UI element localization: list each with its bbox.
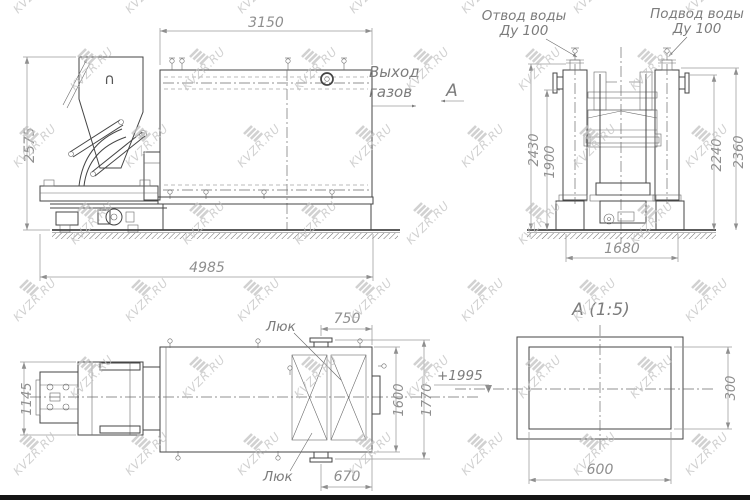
watermark-text: KVZR.RU [515,198,564,247]
dim-2360: 2360 [732,135,747,168]
watermark-text: KVZR.RU [234,275,283,324]
watermark-text: KVZR.RU [458,275,507,324]
dim-4985: 4985 [189,260,225,276]
watermark-text: KVZR.RU [179,44,228,93]
watermark-text: KVZR.RU [10,429,59,478]
watermark-text: KVZR.RU [627,352,676,401]
ground-side [52,230,400,239]
watermark-text: KVZR.RU [458,429,507,478]
watermark-text: KVZR.RU [346,429,395,478]
watermark-text: KVZR.RU [122,0,171,16]
watermark-text: KVZR.RU [234,0,283,16]
watermark-text: KVZR.RU [570,121,619,170]
watermark-text: KVZR.RU [179,198,228,247]
water-outlet-label-2: Ду 100 [499,23,549,39]
watermark-text: KVZR.RU [346,121,395,170]
watermark-text: KVZR.RU [627,44,676,93]
watermark-text: KVZR.RU [122,429,171,478]
dim-300: 300 [724,376,739,401]
water-inlet-label-2: Ду 100 [672,21,722,37]
hatch-label-bottom: Люк [262,469,294,485]
elevation-label: +1995 [437,368,483,384]
watermark-text: KVZR.RU [346,275,395,324]
dim-3150: 3150 [248,15,284,31]
watermark-text: KVZR.RU [67,352,116,401]
plan-flanges [310,338,380,462]
watermark-text: KVZR.RU [122,275,171,324]
watermark-text: KVZR.RU [291,198,340,247]
watermark-text: KVZR.RU [570,0,619,16]
watermark-text: KVZR.RU [515,352,564,401]
watermark-text: KVZR.RU [10,0,59,16]
watermark-text: KVZR.RU [458,121,507,170]
watermark-text: KVZR.RU [179,352,228,401]
watermark-text: KVZR.RU [291,352,340,401]
flue-flange [321,73,333,85]
boiler-technical-drawing: ∩ [0,0,750,500]
ground-front [527,230,716,239]
dimension-4985: 4985 [40,234,373,281]
dimension-300: 300 [674,347,739,429]
hopper-symbol: ∩ [104,70,115,88]
dimension-1145: 1145 [20,362,76,435]
dimension-3150: 3150 [160,15,372,65]
section-cut-label: А [445,81,458,101]
drawing-sheet: ∩ [0,0,750,500]
side-view: ∩ [22,15,464,281]
watermark-text: KVZR.RU [682,275,731,324]
dim-1145: 1145 [20,382,35,415]
boiler-base [158,197,373,204]
bottom-fittings [168,190,334,199]
section-cut-marker: А [441,81,464,101]
watermark-text: KVZR.RU [291,44,340,93]
watermark-text: KVZR.RU [403,198,452,247]
hatch-label-top: Люк [265,319,297,335]
watermark-text: KVZR.RU [346,0,395,16]
dim-2430: 2430 [527,133,542,166]
watermark-text: KVZR.RU [682,429,731,478]
watermark-text: KVZR.RU [10,275,59,324]
watermark-text: KVZR.RU [234,121,283,170]
water-outlet-note: Отвод воды Ду 100 [482,8,577,57]
water-outlet-label-1: Отвод воды [482,8,567,24]
loader-frame [40,186,158,201]
bottom-border-bar [0,495,750,500]
dim-1900: 1900 [543,145,558,178]
